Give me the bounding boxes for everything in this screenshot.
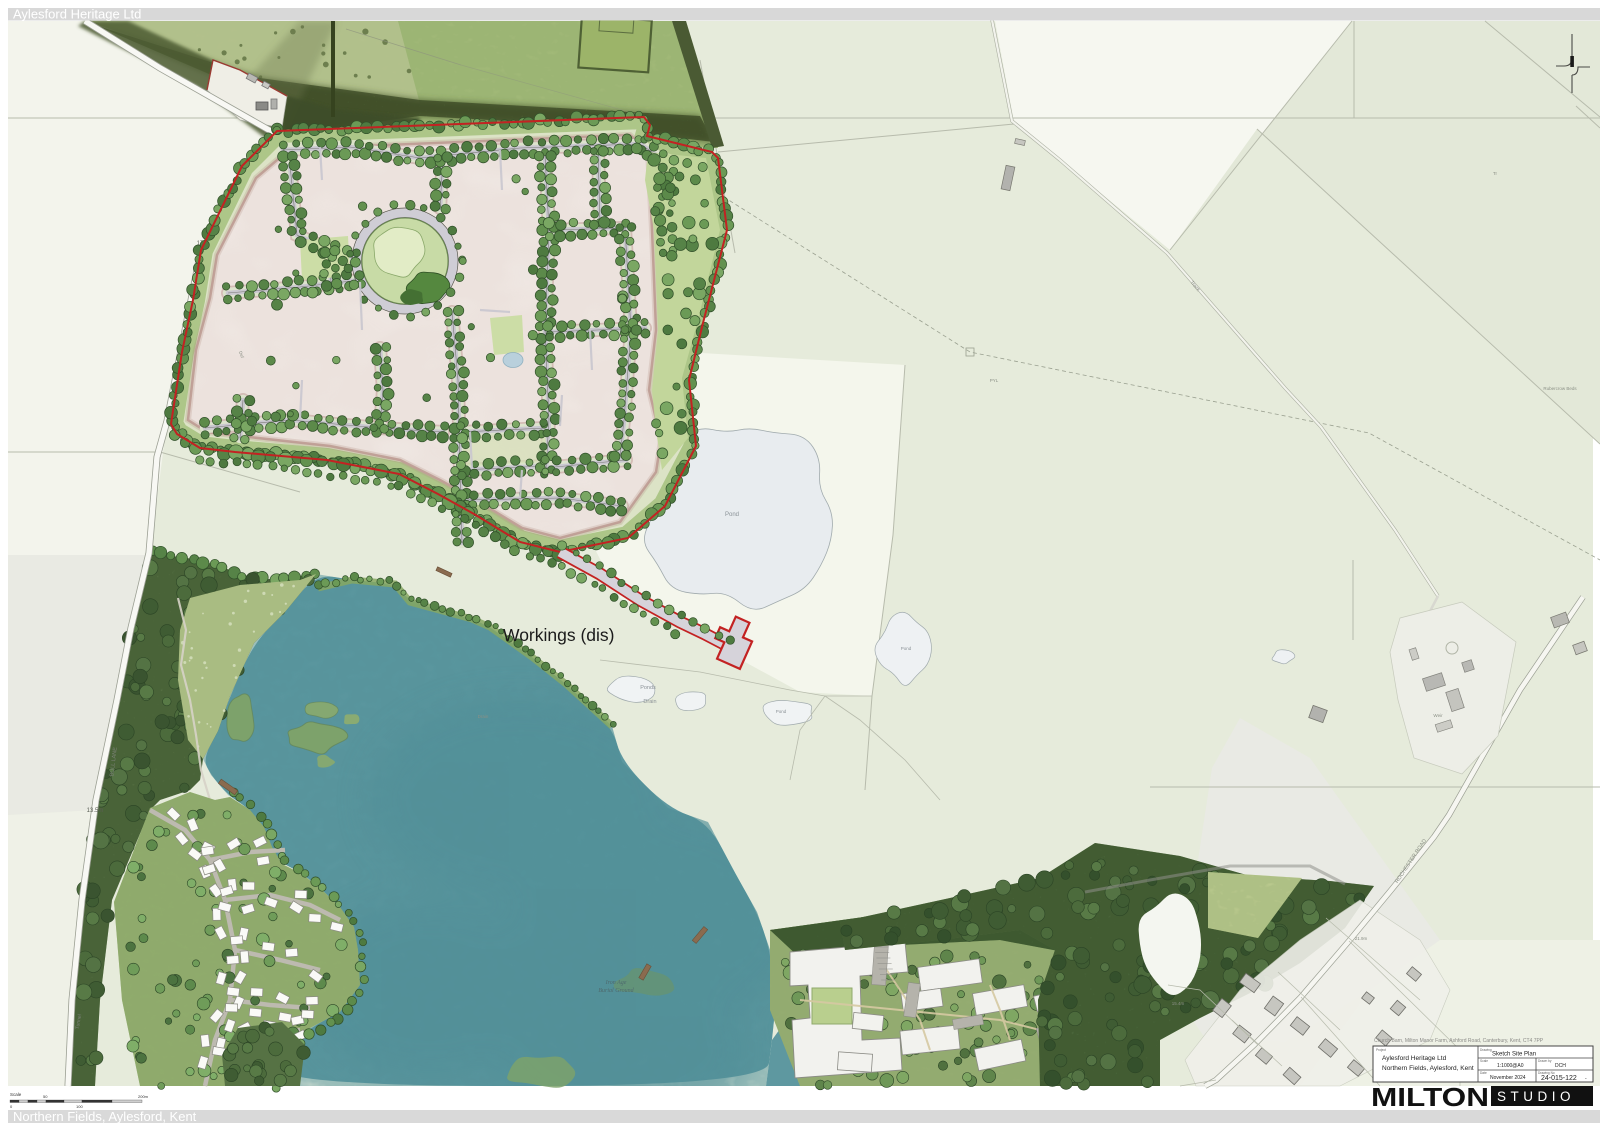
svg-text:Ponds: Ponds — [640, 685, 656, 691]
svg-text:Tr: Tr — [1493, 171, 1498, 176]
svg-text:Rubercrow Beds: Rubercrow Beds — [1543, 386, 1577, 391]
svg-text:November 2024: November 2024 — [1490, 1075, 1526, 1081]
svg-text:15.4m: 15.4m — [1172, 1001, 1185, 1006]
svg-text:Church Barn, Milton Manor Farm: Church Barn, Milton Manor Farm, Ashford … — [1374, 1038, 1544, 1044]
svg-text:Sketch Site Plan: Sketch Site Plan — [1492, 1052, 1536, 1058]
svg-text:13.5m: 13.5m — [87, 808, 104, 814]
svg-text:Pond: Pond — [776, 709, 787, 714]
svg-text:PYL: PYL — [990, 378, 999, 383]
svg-text:Date: Date — [1480, 1071, 1487, 1075]
svg-text:Pond: Pond — [901, 646, 912, 651]
svg-text:Project: Project — [1376, 1048, 1386, 1052]
svg-text:Drawing: Drawing — [1480, 1048, 1492, 1052]
svg-text:Pond: Pond — [725, 512, 739, 518]
svg-text:Drain: Drain — [478, 714, 489, 719]
svg-text:MILTON: MILTON — [1371, 1082, 1489, 1112]
svg-text:Iron Age: Iron Age — [605, 980, 627, 986]
svg-text:STUDIO: STUDIO — [1497, 1089, 1575, 1104]
svg-text:Scale: Scale — [1480, 1059, 1488, 1063]
svg-text:Weir: Weir — [1433, 713, 1443, 718]
svg-text:100: 100 — [76, 1104, 83, 1109]
svg-text:Aylesford Heritage Ltd: Aylesford Heritage Ltd — [13, 7, 141, 22]
svg-text:Burial Ground: Burial Ground — [598, 988, 634, 994]
svg-text:Aylesford Heritage Ltd: Aylesford Heritage Ltd — [1382, 1055, 1447, 1062]
svg-text:1:1000@A0: 1:1000@A0 — [1497, 1063, 1524, 1069]
svg-text:Workings (dis): Workings (dis) — [503, 625, 615, 645]
svg-text:24-015-122: 24-015-122 — [1541, 1075, 1577, 1082]
svg-text:200m: 200m — [138, 1094, 149, 1099]
svg-text:Northern Fields, Aylesford, Ke: Northern Fields, Aylesford, Kent — [1382, 1065, 1474, 1072]
svg-text:Drain: Drain — [643, 699, 656, 705]
svg-text:Northern Fields, Aylesford, Ke: Northern Fields, Aylesford, Kent — [13, 1109, 197, 1124]
svg-text:21.9m: 21.9m — [1355, 936, 1368, 941]
svg-text:Drawn by: Drawn by — [1538, 1059, 1552, 1063]
svg-text:Scale: Scale — [10, 1092, 22, 1097]
svg-text:50: 50 — [43, 1094, 48, 1099]
svg-text:DCH: DCH — [1555, 1063, 1566, 1069]
